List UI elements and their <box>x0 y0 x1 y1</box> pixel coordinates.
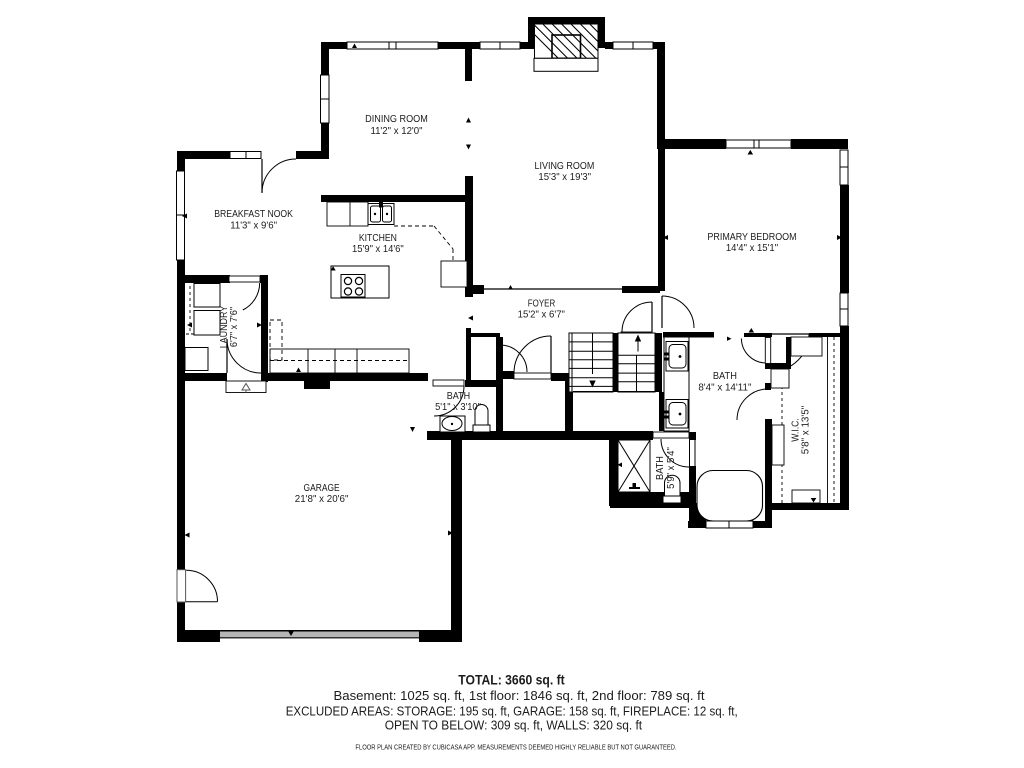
svg-text:Basement: 1025 sq. ft, 1st flo: Basement: 1025 sq. ft, 1st floor: 1846 s… <box>334 688 705 703</box>
svg-text:15'3" x 19'3": 15'3" x 19'3" <box>538 171 591 183</box>
svg-text:15'2" x 6'7": 15'2" x 6'7" <box>518 309 566 321</box>
svg-text:5'9" x 5'4": 5'9" x 5'4" <box>665 447 677 489</box>
svg-text:11'3" x 9'6": 11'3" x 9'6" <box>230 219 277 231</box>
svg-text:FLOOR PLAN CREATED BY CUBICASA: FLOOR PLAN CREATED BY CUBICASA APP. MEAS… <box>355 743 676 752</box>
svg-text:6'7" x 7'6": 6'7" x 7'6" <box>228 307 240 348</box>
svg-text:14'4" x 15'1": 14'4" x 15'1" <box>726 242 778 254</box>
svg-text:8'4" x 14'11": 8'4" x 14'11" <box>698 382 751 394</box>
svg-text:LIVING ROOM: LIVING ROOM <box>535 160 595 172</box>
svg-text:OPEN TO BELOW: 309 sq. ft, WAL: OPEN TO BELOW: 309 sq. ft, WALLS: 320 sq… <box>385 718 643 733</box>
svg-text:BATH: BATH <box>713 370 737 382</box>
svg-text:11'2" x 12'0": 11'2" x 12'0" <box>370 125 422 137</box>
svg-text:5'8" x 13'5": 5'8" x 13'5" <box>800 405 812 454</box>
svg-text:TOTAL: 3660 sq. ft: TOTAL: 3660 sq. ft <box>458 673 565 688</box>
svg-text:5'1" x 3'10": 5'1" x 3'10" <box>435 401 481 413</box>
svg-text:BREAKFAST NOOK: BREAKFAST NOOK <box>214 208 293 220</box>
svg-text:21'8" x 20'6": 21'8" x 20'6" <box>295 493 349 505</box>
svg-text:EXCLUDED AREAS: STORAGE: 195 s: EXCLUDED AREAS: STORAGE: 195 sq. ft, GAR… <box>286 704 738 719</box>
svg-text:DINING ROOM: DINING ROOM <box>365 113 428 125</box>
svg-text:15'9" x 14'6": 15'9" x 14'6" <box>352 243 404 255</box>
